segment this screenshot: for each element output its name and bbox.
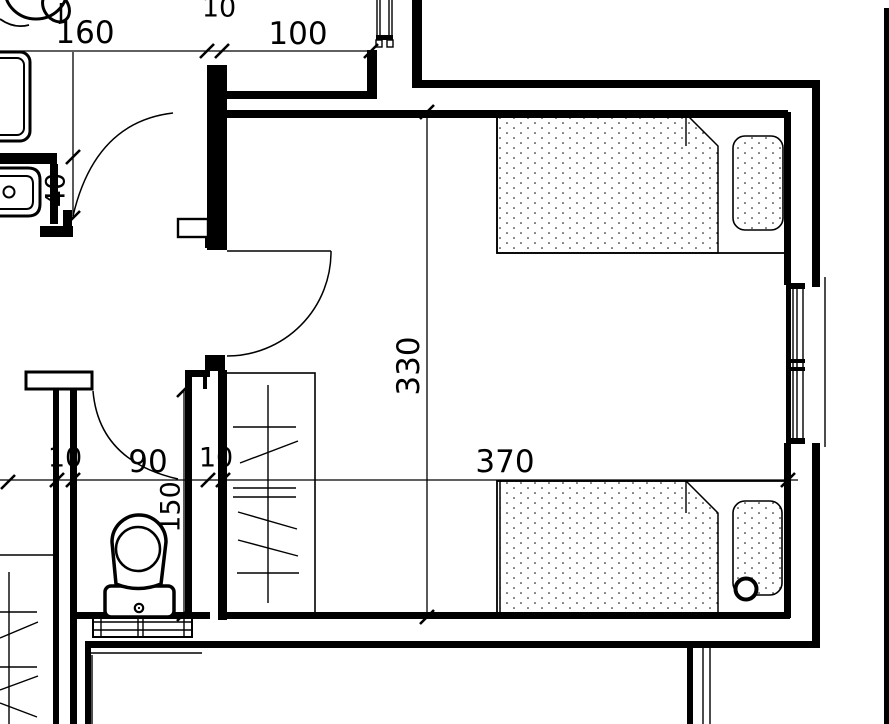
wall-outline-0 <box>26 372 92 389</box>
dimension-label-1: 10 <box>202 0 236 24</box>
dimension-label-5: 370 <box>475 444 534 480</box>
wall-1 <box>412 80 818 88</box>
wall-26 <box>205 238 225 248</box>
wall-30 <box>787 283 805 289</box>
wall-23 <box>203 377 207 389</box>
wall-13 <box>225 91 377 99</box>
furniture-box-0 <box>225 373 315 613</box>
wall-33 <box>786 367 805 371</box>
dimension-label-3: 40 <box>41 173 72 207</box>
detail-line-15 <box>0 622 38 638</box>
wall-22 <box>185 370 210 377</box>
floor-plan: 1601010040330370109010150 <box>0 0 889 724</box>
wall-11 <box>85 645 91 724</box>
furniture-box-3 <box>733 136 783 230</box>
wall-20 <box>70 389 77 724</box>
wall-10 <box>85 641 818 648</box>
wall-6 <box>786 283 791 444</box>
furniture-box-7 <box>0 58 24 135</box>
wall-14 <box>367 50 377 98</box>
wall-12 <box>207 65 227 250</box>
wall-25 <box>205 355 225 371</box>
fixture-path-6 <box>0 19 29 26</box>
wall-31 <box>787 438 805 444</box>
dimension-label-8: 10 <box>199 443 233 474</box>
wall-27 <box>687 647 693 724</box>
fixture-circle-4 <box>736 579 757 600</box>
dimension-label-2: 100 <box>268 16 327 52</box>
detail-line-17 <box>0 703 37 717</box>
wall-32 <box>786 359 805 363</box>
fixture-circle-2 <box>138 607 140 609</box>
wall-0 <box>412 0 422 82</box>
dimension-label-6: 10 <box>48 443 82 474</box>
dimension-label-9: 150 <box>156 481 187 533</box>
dimension-label-0: 160 <box>55 15 114 51</box>
wall-15 <box>0 153 57 164</box>
wall-3 <box>812 443 820 648</box>
fixture-path-4 <box>227 251 331 356</box>
furniture-box-6 <box>0 52 30 141</box>
detail-line-16 <box>0 676 38 690</box>
wall-19 <box>53 389 59 724</box>
wall-2 <box>812 80 820 287</box>
furniture-box-9 <box>387 40 393 47</box>
plan-root: 1601010040330370109010150 <box>0 0 889 724</box>
dimension-label-7: 90 <box>128 444 167 480</box>
floor-plan-svg: 1601010040330370109010150 <box>0 0 889 724</box>
dimension-label-4: 330 <box>391 336 427 395</box>
wall-outline-1 <box>178 219 208 237</box>
wall-29 <box>376 35 393 40</box>
fixture-path-3 <box>73 113 173 216</box>
blanket-0 <box>497 114 718 253</box>
wall-28 <box>884 8 889 724</box>
dimension-tick-5 <box>1 475 15 489</box>
detail-line-8 <box>240 441 298 463</box>
